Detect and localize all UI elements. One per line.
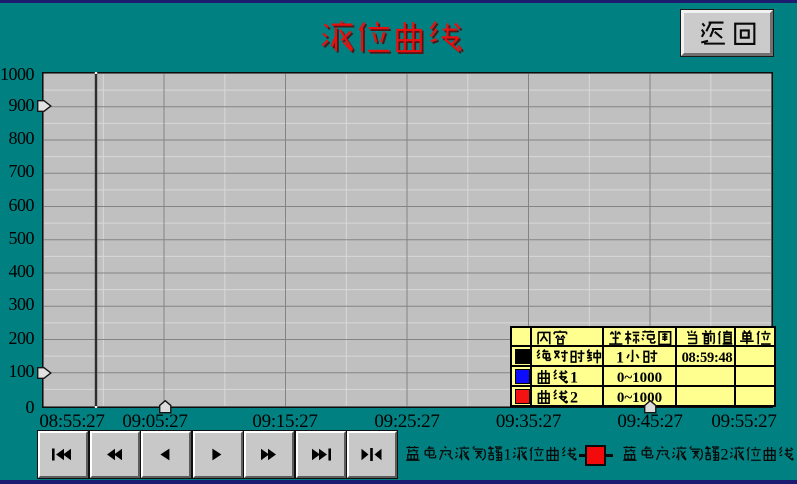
svg-text:1: 1	[503, 446, 511, 462]
svg-text:2: 2	[570, 390, 578, 406]
svg-text:1: 1	[570, 370, 578, 386]
svg-text:2: 2	[720, 446, 728, 462]
svg-text:1: 1	[616, 350, 624, 366]
